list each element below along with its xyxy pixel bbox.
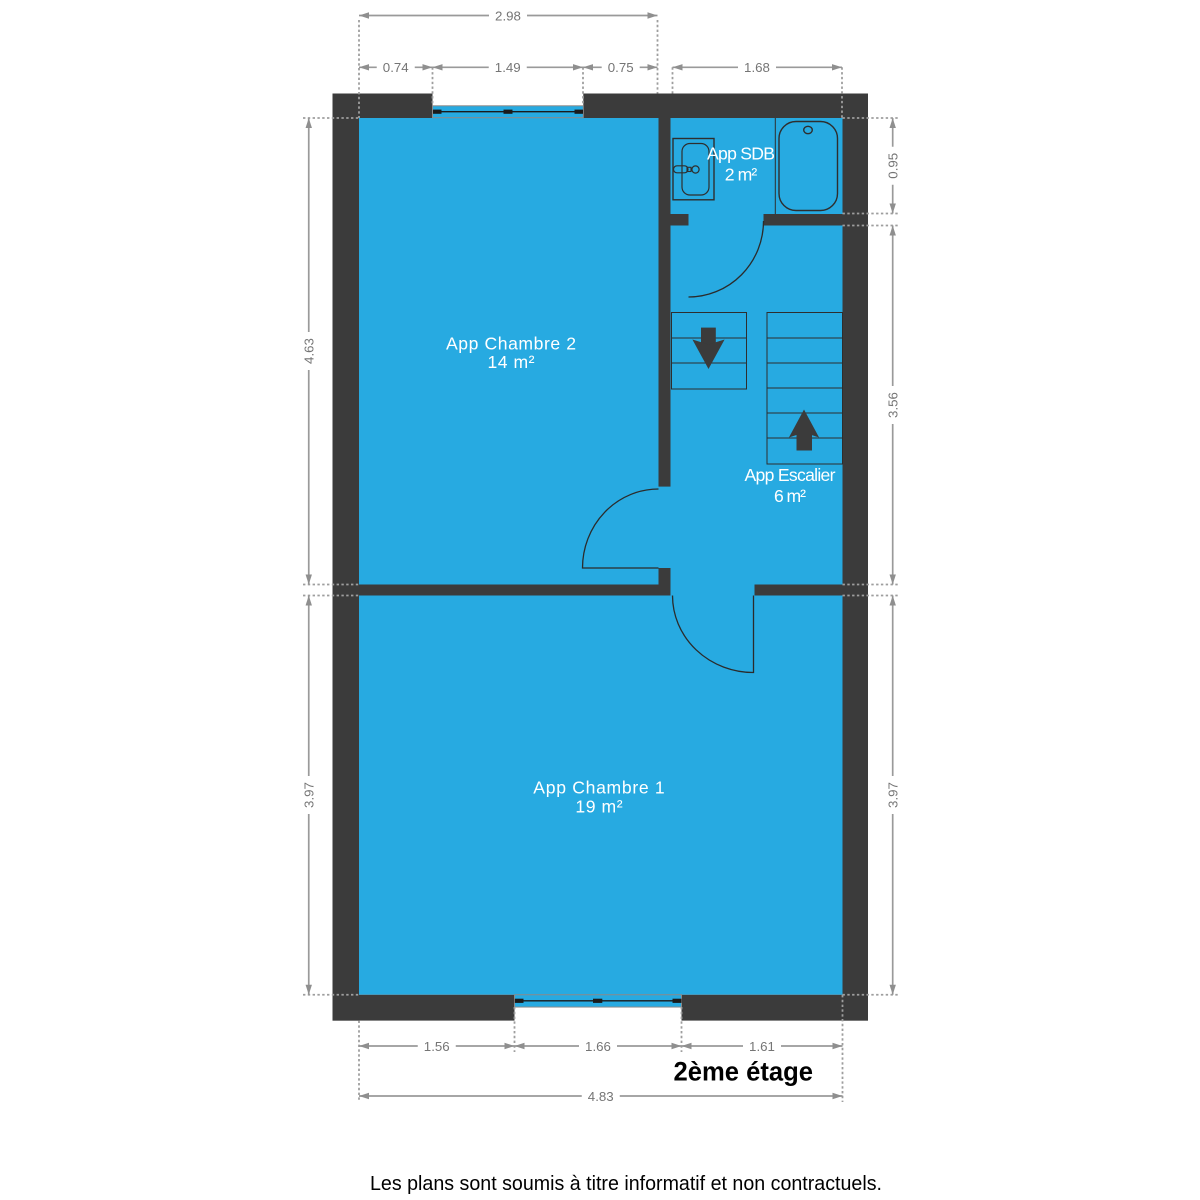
svg-text:2 m²: 2 m² bbox=[725, 165, 758, 185]
svg-text:3.56: 3.56 bbox=[886, 392, 901, 418]
svg-text:1.61: 1.61 bbox=[749, 1039, 775, 1054]
svg-text:4.83: 4.83 bbox=[588, 1089, 614, 1104]
svg-text:4.63: 4.63 bbox=[302, 338, 317, 364]
svg-text:0.75: 0.75 bbox=[608, 60, 634, 75]
svg-text:1.56: 1.56 bbox=[424, 1039, 450, 1054]
svg-text:0.95: 0.95 bbox=[886, 153, 901, 179]
svg-text:14 m²: 14 m² bbox=[488, 352, 535, 372]
svg-text:19 m²: 19 m² bbox=[575, 796, 622, 816]
svg-text:3.97: 3.97 bbox=[886, 782, 901, 808]
svg-text:App SDB: App SDB bbox=[707, 143, 775, 163]
svg-text:App Chambre 2: App Chambre 2 bbox=[446, 333, 576, 353]
svg-text:3.97: 3.97 bbox=[302, 782, 317, 808]
svg-text:Les plans sont soumis à titre: Les plans sont soumis à titre informatif… bbox=[370, 1173, 882, 1195]
svg-text:0.74: 0.74 bbox=[383, 60, 409, 75]
svg-text:2.98: 2.98 bbox=[495, 8, 521, 23]
svg-text:2ème étage: 2ème étage bbox=[674, 1057, 814, 1087]
svg-text:1.68: 1.68 bbox=[744, 60, 770, 75]
svg-text:6 m²: 6 m² bbox=[774, 486, 806, 506]
svg-text:App Escalier: App Escalier bbox=[745, 465, 836, 485]
svg-text:App Chambre 1: App Chambre 1 bbox=[533, 778, 664, 798]
svg-text:1.66: 1.66 bbox=[585, 1039, 611, 1054]
svg-text:1.49: 1.49 bbox=[495, 60, 521, 75]
